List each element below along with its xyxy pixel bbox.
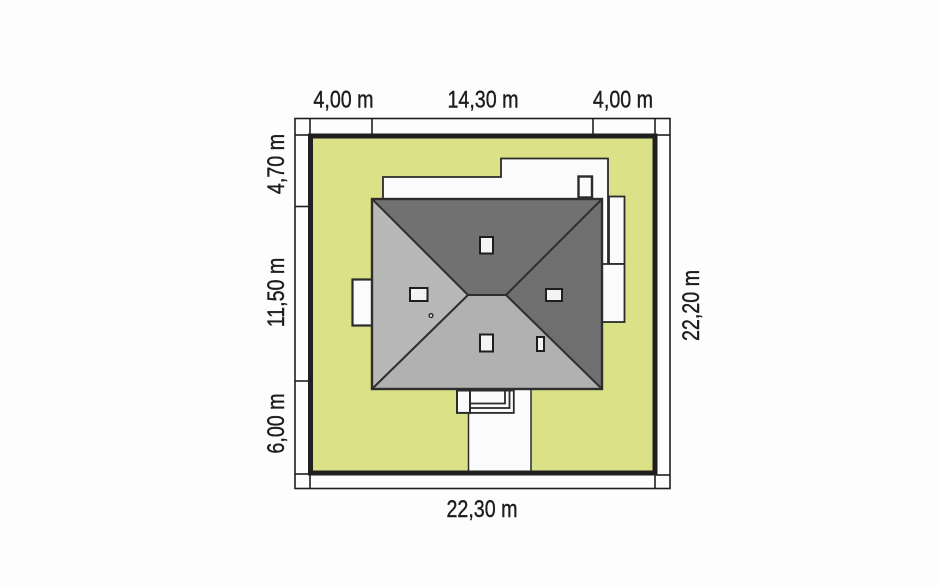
svg-text:6,00 m: 6,00 m (262, 393, 289, 453)
svg-text:22,20 m: 22,20 m (677, 270, 704, 341)
svg-text:4,00 m: 4,00 m (593, 86, 653, 113)
svg-text:11,50 m: 11,50 m (262, 258, 289, 328)
svg-text:14,30 m: 14,30 m (447, 86, 518, 113)
svg-text:4,70 m: 4,70 m (262, 134, 289, 194)
svg-text:22,30 m: 22,30 m (446, 495, 517, 522)
svg-text:4,00 m: 4,00 m (313, 86, 373, 113)
